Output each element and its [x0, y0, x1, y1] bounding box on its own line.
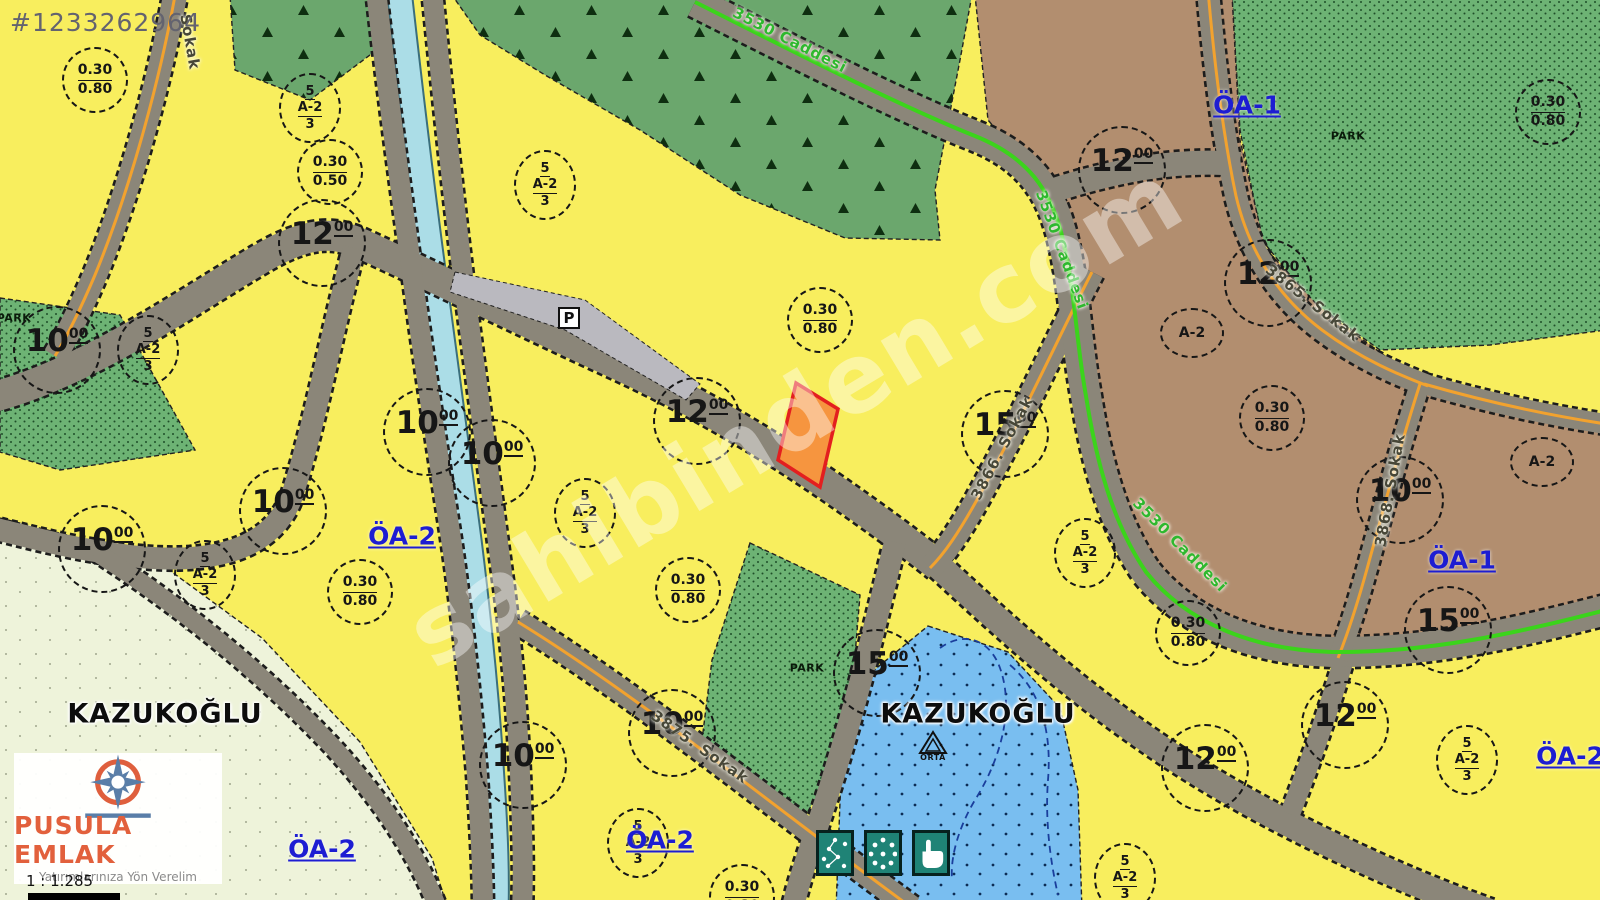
building-ratio-label: 0.300.80 [1155, 600, 1221, 666]
street-name-label: 3530 Caddesi [1129, 494, 1231, 596]
scale-bar [28, 893, 120, 900]
zoning-map-screenshot: 1200100010001000100010001200150012001200… [0, 0, 1600, 900]
draw-polygon-tool[interactable] [864, 830, 902, 876]
building-ratio-label: 0.300.80 [327, 559, 393, 625]
road-width-label: 1200 [278, 199, 366, 287]
zone-area-label: ÖA-2 [288, 835, 356, 864]
wc-sup: 00 [1357, 702, 1376, 719]
road-width-label: 1200 [1301, 681, 1389, 769]
zone-fraction-label: 5A-23 [279, 73, 341, 143]
zone-fraction-label: 5A-23 [554, 478, 616, 548]
wc-sup: 00 [295, 488, 314, 505]
zf-mid: A-2 [573, 505, 598, 522]
zf-mid: A-2 [298, 100, 323, 117]
ratio-top: 0.30 [1171, 615, 1206, 634]
ratio-top: 0.30 [78, 62, 113, 81]
road-width-label: 1000 [58, 505, 146, 593]
ratio-bottom: 0.80 [1531, 113, 1566, 131]
zone-area-label: ÖA-1 [1428, 546, 1496, 575]
map-scale: 1 : 1.285 [26, 872, 93, 890]
zf-top: 5 [1462, 736, 1471, 753]
wc-num: 12 [291, 219, 334, 250]
road-width-label: 1200 [653, 377, 741, 465]
park-label: PARK [0, 312, 31, 325]
wc-num: 15 [1417, 606, 1460, 637]
wc-num: 10 [461, 439, 504, 470]
zf-bottom: 3 [580, 522, 589, 538]
wc-sup: 00 [504, 440, 523, 457]
street-name-label: 3530 Caddesi [730, 3, 850, 76]
zone-code-label: A-2 [1510, 437, 1574, 487]
network-dots-icon [821, 836, 849, 870]
zone-fraction-label: 5A-23 [1436, 725, 1498, 795]
zf-bottom: 3 [200, 584, 209, 600]
zf-top: 5 [200, 551, 209, 568]
road-width-label: 1200 [1078, 126, 1166, 214]
wc-num: 10 [252, 487, 295, 518]
zf-mid: A-2 [136, 342, 161, 359]
school-label: ORTA [920, 753, 946, 762]
zone-fraction-label: 5A-23 [514, 150, 576, 220]
a2-text: A-2 [1179, 325, 1205, 341]
park-label: PARK [790, 662, 825, 675]
ratio-top: 0.30 [1255, 400, 1290, 419]
wc-num: 10 [26, 326, 69, 357]
zone-fraction-label: 5A-23 [1054, 518, 1116, 588]
road-width-label: 1200 [1161, 724, 1249, 812]
parking-letter: P [564, 309, 575, 327]
zf-bottom: 3 [1120, 887, 1129, 900]
road-width-label: 1500 [1404, 586, 1492, 674]
map-tools [816, 830, 950, 876]
zone-area-label: ÖA-2 [1536, 742, 1600, 771]
wc-sup: 00 [709, 398, 728, 415]
zf-bottom: 3 [540, 194, 549, 210]
hand-pointer-icon [916, 836, 946, 870]
school-symbol: ORTA [918, 730, 948, 762]
building-ratio-label: 0.300.80 [62, 47, 128, 113]
ratio-top: 0.30 [313, 154, 348, 173]
zone-code-label: A-2 [1160, 308, 1224, 358]
polygon-dots-icon [869, 836, 897, 870]
zone-area-label: ÖA-2 [626, 826, 694, 855]
wc-num: 10 [396, 408, 439, 439]
ratio-bottom: 0.50 [313, 173, 348, 191]
street-name-label: 3530 Caddesi [1032, 188, 1092, 312]
zf-mid: A-2 [1073, 545, 1098, 562]
agency-name: PUSULA EMLAK [14, 811, 222, 869]
wc-num: 12 [1174, 744, 1217, 775]
agency-logo-card: PUSULA EMLAK Yatırımlarınıza Yön Verelim [14, 753, 222, 884]
ratio-top: 0.30 [343, 574, 378, 593]
district-label: KAZUKOĞLU [67, 699, 262, 730]
wc-sup: 00 [889, 650, 908, 667]
wc-sup: 00 [114, 526, 133, 543]
ratio-top: 0.30 [1531, 94, 1566, 113]
zf-bottom: 3 [143, 359, 152, 375]
building-ratio-label: 0.300.80 [709, 864, 775, 900]
pan-hand-tool[interactable] [912, 830, 950, 876]
zf-top: 5 [305, 84, 314, 101]
wc-sup: 00 [1460, 607, 1479, 624]
zone-fraction-label: 5A-23 [1094, 843, 1156, 900]
a2-text: A-2 [1529, 454, 1555, 470]
ratio-bottom: 0.80 [803, 321, 838, 339]
park-label: PARK [1331, 130, 1366, 143]
building-ratio-label: 0.300.80 [1515, 79, 1581, 145]
building-ratio-label: 0.300.50 [297, 139, 363, 205]
zf-bottom: 3 [305, 117, 314, 133]
wc-num: 10 [492, 741, 535, 772]
wc-sup: 00 [684, 710, 703, 727]
map-label-layer: 1200100010001000100010001200150012001200… [0, 0, 1600, 900]
measure-network-tool[interactable] [816, 830, 854, 876]
zf-bottom: 3 [1080, 562, 1089, 578]
zf-bottom: 3 [1462, 769, 1471, 785]
ratio-bottom: 0.80 [343, 593, 378, 611]
zf-mid: A-2 [193, 567, 218, 584]
ratio-bottom: 0.80 [1171, 634, 1206, 652]
district-label: KAZUKOĞLU [880, 699, 1075, 730]
zone-area-label: ÖA-1 [1213, 91, 1281, 120]
zf-top: 5 [1120, 854, 1129, 871]
zone-fraction-label: 5A-23 [117, 315, 179, 385]
wc-sup: 00 [535, 742, 554, 759]
ratio-top: 0.30 [671, 572, 706, 591]
road-width-label: 1000 [479, 721, 567, 809]
building-ratio-label: 0.300.80 [655, 557, 721, 623]
zf-mid: A-2 [1113, 870, 1138, 887]
ratio-bottom: 0.80 [671, 591, 706, 609]
wc-sup: 00 [439, 409, 458, 426]
road-width-label: 1000 [239, 467, 327, 555]
zf-mid: A-2 [533, 177, 558, 194]
school-triangle-icon [918, 730, 948, 755]
wc-sup: 00 [69, 327, 88, 344]
building-ratio-label: 0.300.80 [787, 287, 853, 353]
building-ratio-label: 0.300.80 [1239, 385, 1305, 451]
zone-fraction-label: 5A-23 [174, 540, 236, 610]
ratio-bottom: 0.80 [78, 81, 113, 99]
wc-num: 15 [846, 649, 889, 680]
wc-sup: 00 [334, 220, 353, 237]
wc-sup: 00 [1217, 745, 1236, 762]
zone-area-label: ÖA-2 [368, 522, 436, 551]
wc-sup: 00 [1412, 477, 1431, 494]
parking-symbol: P [558, 307, 580, 329]
road-width-label: 1000 [448, 419, 536, 507]
ratio-bottom: 0.80 [1255, 419, 1290, 437]
zf-top: 5 [1080, 529, 1089, 546]
ratio-top: 0.30 [725, 879, 760, 898]
zf-top: 5 [540, 161, 549, 178]
wc-num: 12 [1314, 701, 1357, 732]
wc-sup: 00 [1134, 147, 1153, 164]
zf-top: 5 [580, 489, 589, 506]
zf-top: 5 [143, 326, 152, 343]
wc-num: 10 [71, 525, 114, 556]
compass-logo-icon [58, 753, 178, 820]
listing-id: #1233262964 [10, 8, 201, 37]
wc-num: 12 [1091, 146, 1134, 177]
ratio-top: 0.30 [803, 302, 838, 321]
zf-mid: A-2 [1455, 752, 1480, 769]
wc-num: 12 [666, 397, 709, 428]
